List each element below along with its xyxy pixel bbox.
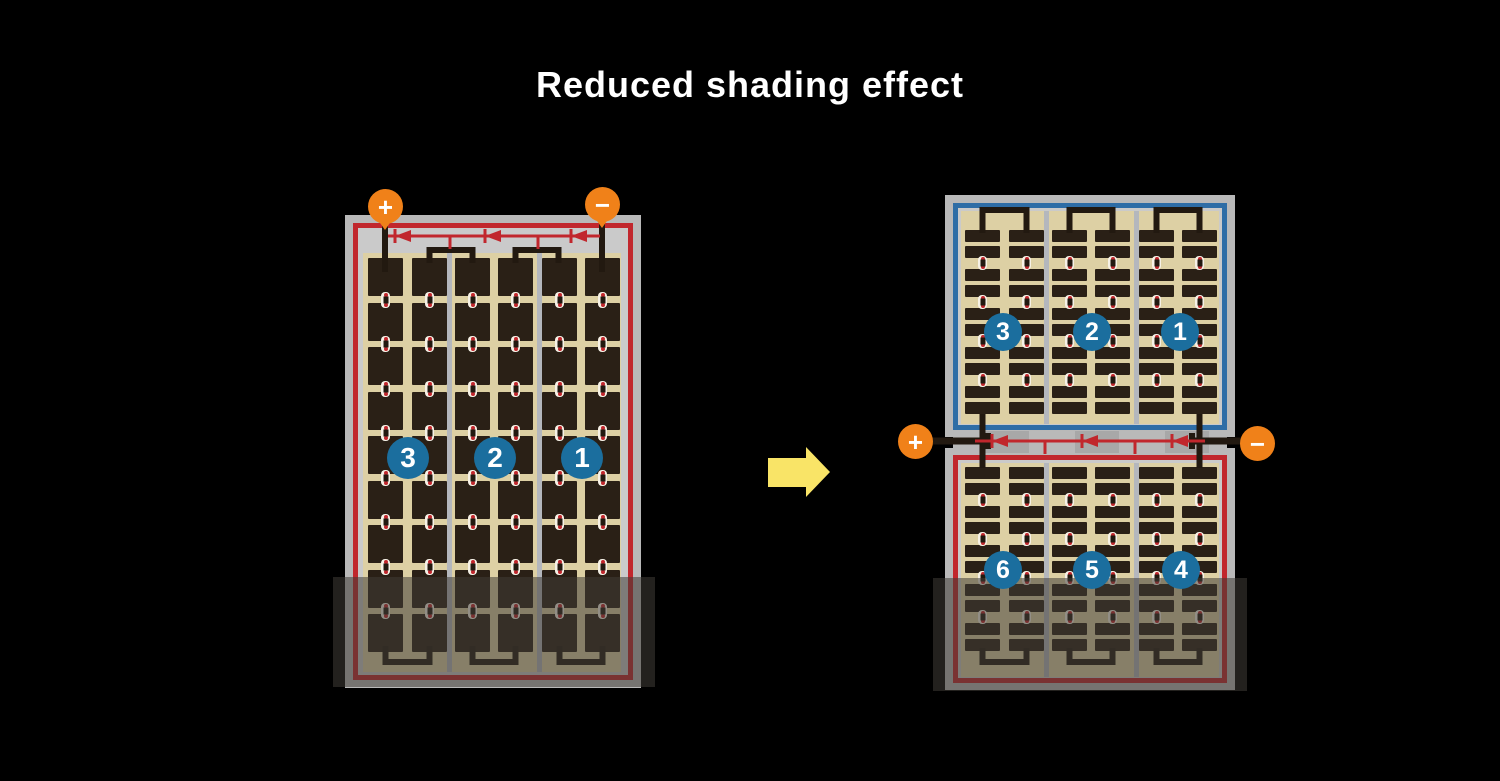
shading-overlay-right (933, 578, 1247, 691)
string-number-badge: 3 (387, 437, 429, 479)
string-number-badge: 2 (1073, 313, 1111, 351)
cell-bridge-trace (1157, 210, 1200, 233)
minus-terminal-icon: − (1240, 426, 1275, 461)
minus-terminal-icon: − (585, 187, 620, 222)
cell-bridge-trace (430, 250, 473, 263)
cell-bridge-trace (516, 250, 559, 263)
diode-icon (395, 230, 411, 242)
diagram-canvas: Reduced shading effect 3 2 1 3 2 1 6 5 4… (0, 0, 1500, 781)
string-number-badge: 5 (1073, 551, 1111, 589)
plus-terminal-icon: + (368, 189, 403, 224)
cell-bridge-trace (1070, 210, 1113, 233)
string-number-badge: 4 (1162, 551, 1200, 589)
wiring-layer (0, 0, 1500, 781)
string-number-badge: 1 (1161, 313, 1199, 351)
diode-icon (485, 230, 501, 242)
plus-terminal-icon: + (898, 424, 933, 459)
right-arrow-icon (768, 447, 830, 497)
string-number-badge: 2 (474, 437, 516, 479)
string-number-badge: 6 (984, 551, 1022, 589)
diode-icon (1172, 435, 1188, 447)
diode-icon (992, 435, 1008, 447)
shading-overlay-left (333, 577, 655, 687)
diode-icon (1082, 435, 1098, 447)
string-number-badge: 3 (984, 313, 1022, 351)
cell-bridge-trace (983, 210, 1027, 233)
diode-icon (571, 230, 587, 242)
string-number-badge: 1 (561, 437, 603, 479)
